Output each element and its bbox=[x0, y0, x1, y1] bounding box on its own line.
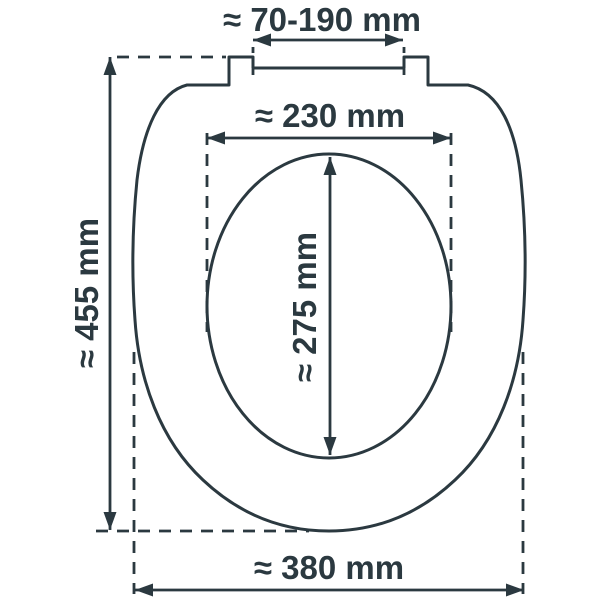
dim-overall-length-arrow-bottom bbox=[104, 512, 117, 530]
dim-hinge-spacing-label: ≈ 70-190 mm bbox=[223, 1, 421, 38]
dim-inner-length-arrow-top bbox=[324, 157, 337, 175]
dim-overall-width-arrow-right bbox=[506, 584, 524, 597]
dim-inner-length-arrow-bottom bbox=[324, 437, 337, 455]
dim-inner-width-arrow-left bbox=[207, 132, 225, 145]
dim-overall-length-arrow-top bbox=[104, 57, 117, 75]
dim-inner-width-arrow-right bbox=[433, 132, 451, 145]
dim-overall-width-label: ≈ 380 mm bbox=[254, 549, 404, 586]
dim-overall-length-label: ≈ 455 mm bbox=[68, 218, 105, 368]
toilet-seat-diagram: ≈ 70-190 mm ≈ 230 mm ≈ 455 mm bbox=[0, 0, 600, 600]
dim-inner-length-label: ≈ 275 mm bbox=[286, 232, 323, 382]
dim-inner-length: ≈ 275 mm bbox=[286, 157, 337, 455]
dim-inner-width-label: ≈ 230 mm bbox=[255, 97, 405, 134]
diagram-canvas: ≈ 70-190 mm ≈ 230 mm ≈ 455 mm bbox=[0, 0, 600, 600]
dim-overall-width-arrow-left bbox=[135, 584, 153, 597]
